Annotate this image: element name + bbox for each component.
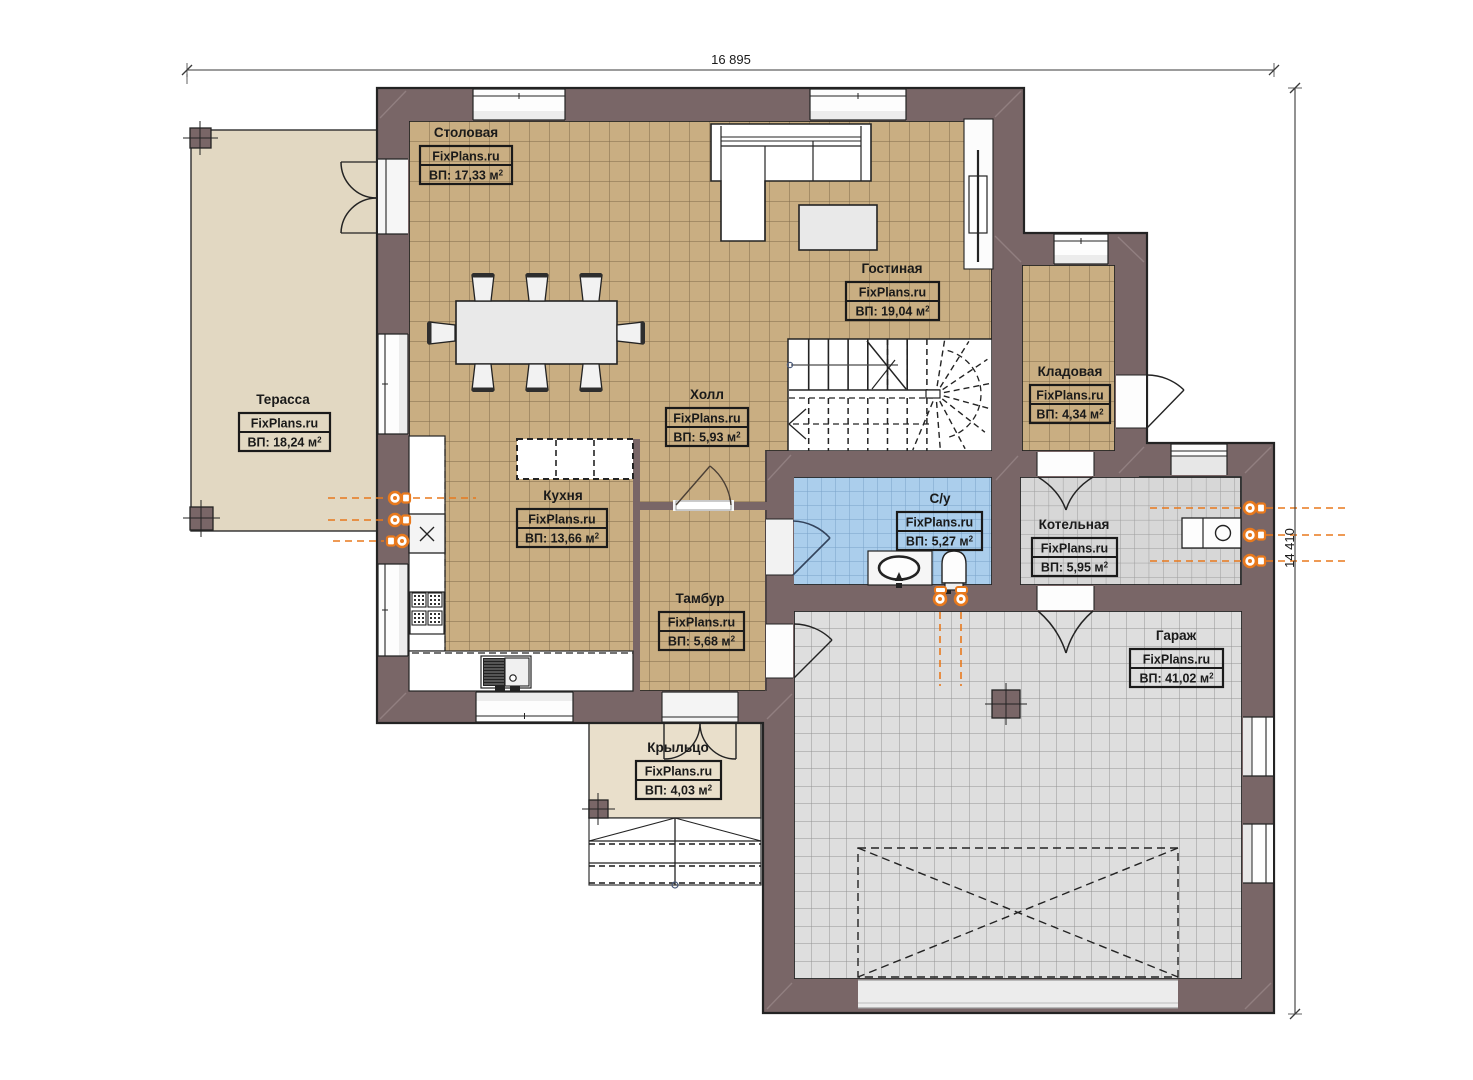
svg-text:ВП: 41,02 м2: ВП: 41,02 м2: [1139, 672, 1214, 686]
svg-text:Холл: Холл: [690, 387, 724, 402]
svg-text:Гостиная: Гостиная: [861, 261, 922, 276]
svg-text:14 410: 14 410: [1282, 528, 1297, 568]
svg-text:ВП: 5,93 м2: ВП: 5,93 м2: [673, 431, 741, 445]
svg-text:FixPlans.ru: FixPlans.ru: [859, 286, 926, 300]
svg-text:FixPlans.ru: FixPlans.ru: [432, 150, 499, 164]
svg-text:С/у: С/у: [929, 491, 951, 506]
svg-text:FixPlans.ru: FixPlans.ru: [673, 412, 740, 426]
svg-text:Тамбур: Тамбур: [676, 591, 725, 606]
svg-text:FixPlans.ru: FixPlans.ru: [528, 513, 595, 527]
svg-text:FixPlans.ru: FixPlans.ru: [645, 765, 712, 779]
svg-text:FixPlans.ru: FixPlans.ru: [1036, 389, 1103, 403]
svg-text:Терасса: Терасса: [256, 392, 310, 407]
svg-text:16 895: 16 895: [711, 52, 751, 67]
svg-text:Гараж: Гараж: [1156, 628, 1197, 643]
svg-text:Столовая: Столовая: [434, 125, 498, 140]
svg-text:ВП: 17,33 м2: ВП: 17,33 м2: [429, 169, 504, 183]
svg-text:FixPlans.ru: FixPlans.ru: [906, 516, 973, 530]
svg-text:FixPlans.ru: FixPlans.ru: [668, 616, 735, 630]
svg-text:ВП: 19,04 м2: ВП: 19,04 м2: [855, 305, 930, 319]
svg-text:Котельная: Котельная: [1039, 517, 1110, 532]
svg-text:Кладовая: Кладовая: [1038, 364, 1103, 379]
svg-text:ВП: 18,24 м2: ВП: 18,24 м2: [247, 436, 322, 450]
svg-text:ВП: 13,66 м2: ВП: 13,66 м2: [525, 532, 600, 546]
svg-text:ВП: 4,03 м2: ВП: 4,03 м2: [645, 784, 713, 798]
svg-text:FixPlans.ru: FixPlans.ru: [1143, 653, 1210, 667]
svg-text:Крыльцо: Крыльцо: [647, 740, 708, 755]
svg-text:ВП: 5,68 м2: ВП: 5,68 м2: [668, 635, 736, 649]
svg-text:ВП: 5,27 м2: ВП: 5,27 м2: [906, 535, 974, 549]
svg-text:ВП: 4,34 м2: ВП: 4,34 м2: [1036, 408, 1104, 422]
svg-text:FixPlans.ru: FixPlans.ru: [1041, 542, 1108, 556]
svg-text:ВП: 5,95 м2: ВП: 5,95 м2: [1041, 561, 1109, 575]
svg-text:FixPlans.ru: FixPlans.ru: [251, 417, 318, 431]
svg-text:Кухня: Кухня: [543, 488, 582, 503]
